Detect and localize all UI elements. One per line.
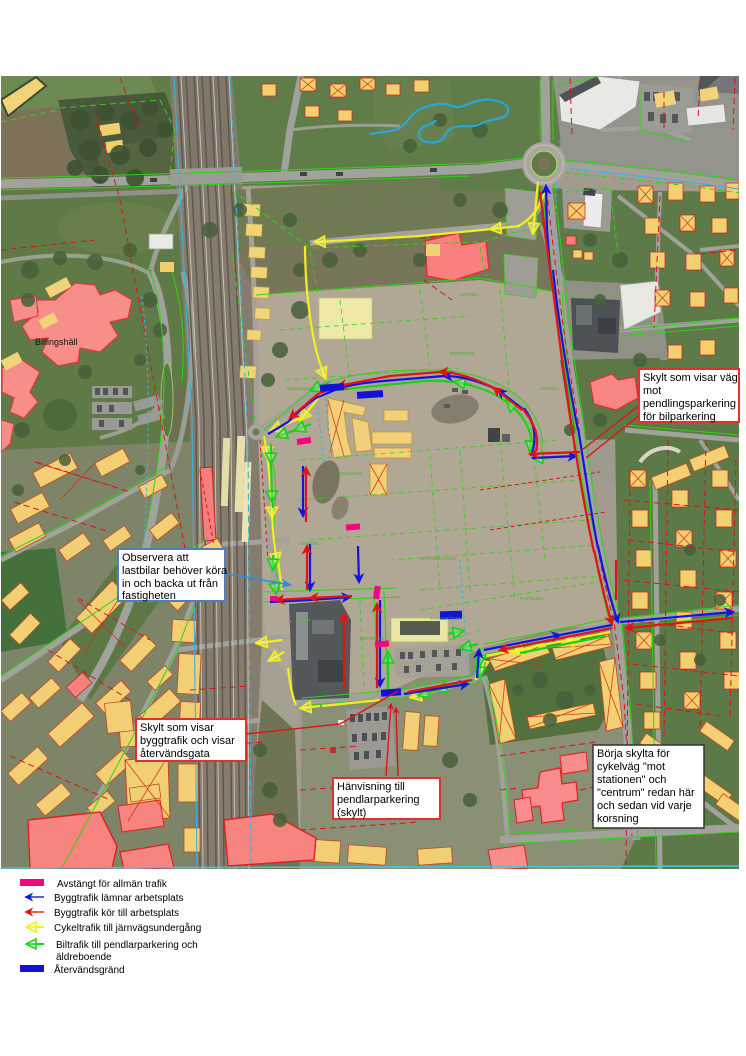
svg-text:VARMBRÖDEN: VARMBRÖDEN — [430, 615, 462, 621]
svg-text:och sedan vid varje: och sedan vid varje — [597, 800, 692, 812]
svg-text:Återvändsgränd: Återvändsgränd — [54, 963, 125, 976]
svg-text:pendlarparkering: pendlarparkering — [337, 794, 420, 806]
svg-text:"centrum" redan här: "centrum" redan här — [597, 787, 695, 799]
svg-text:korsning: korsning — [597, 813, 639, 825]
svg-text:Avstängt för allmän trafik: Avstängt för allmän trafik — [57, 879, 168, 890]
svg-text:VAKTEN: VAKTEN — [460, 292, 478, 297]
svg-text:EXPORTEN: EXPORTEN — [450, 351, 475, 356]
svg-text:PASTEJEN: PASTEJEN — [520, 596, 543, 601]
svg-text:EXPORTEN: EXPORTEN — [360, 636, 385, 641]
svg-text:återvändsgata: återvändsgata — [140, 748, 211, 760]
svg-text:(skylt): (skylt) — [337, 807, 366, 819]
svg-text:Hänvisning till: Hänvisning till — [337, 781, 405, 793]
svg-text:SPICKEMACKEN: SPICKEMACKEN — [420, 556, 456, 561]
svg-text:lastbilar behöver köra: lastbilar behöver köra — [122, 565, 228, 577]
svg-text:VAKTEN: VAKTEN — [540, 386, 558, 391]
svg-text:Stationsgatan: Stationsgatan — [286, 386, 314, 391]
svg-text:Skylt som visar väg: Skylt som visar väg — [643, 372, 738, 384]
svg-text:Börja skylta för: Börja skylta för — [597, 748, 670, 760]
svg-text:KANTEN: KANTEN — [300, 541, 318, 546]
svg-text:in och backa ut från: in och backa ut från — [122, 578, 218, 590]
svg-text:fastigheten: fastigheten — [122, 590, 176, 602]
svg-text:Skylt som visar: Skylt som visar — [140, 722, 214, 734]
svg-text:BAGGSÄCKEN: BAGGSÄCKEN — [330, 470, 362, 476]
svg-text:Cykeltrafik till järnvägsunder: Cykeltrafik till järnvägsundergång — [54, 922, 201, 934]
svg-text:byggtrafik och visar: byggtrafik och visar — [140, 735, 235, 747]
svg-text:för bilparkering: för bilparkering — [643, 411, 716, 423]
svg-text:Billingshäll: Billingshäll — [35, 337, 78, 347]
svg-text:mot: mot — [643, 385, 661, 397]
svg-text:äldreboende: äldreboende — [56, 952, 112, 963]
svg-text:Observera att: Observera att — [122, 552, 189, 564]
svg-text:pendlingsparkering: pendlingsparkering — [643, 398, 736, 410]
svg-text:Byggtrafik kör till arbetsplat: Byggtrafik kör till arbetsplats — [54, 908, 179, 919]
svg-text:stationen" och: stationen" och — [597, 774, 666, 786]
svg-text:cykelväg "mot: cykelväg "mot — [597, 761, 665, 773]
svg-text:Biltrafik till pendlarparkerin: Biltrafik till pendlarparkering och — [56, 940, 198, 951]
svg-text:Byggtrafik lämnar arbetsplats: Byggtrafik lämnar arbetsplats — [54, 893, 184, 904]
